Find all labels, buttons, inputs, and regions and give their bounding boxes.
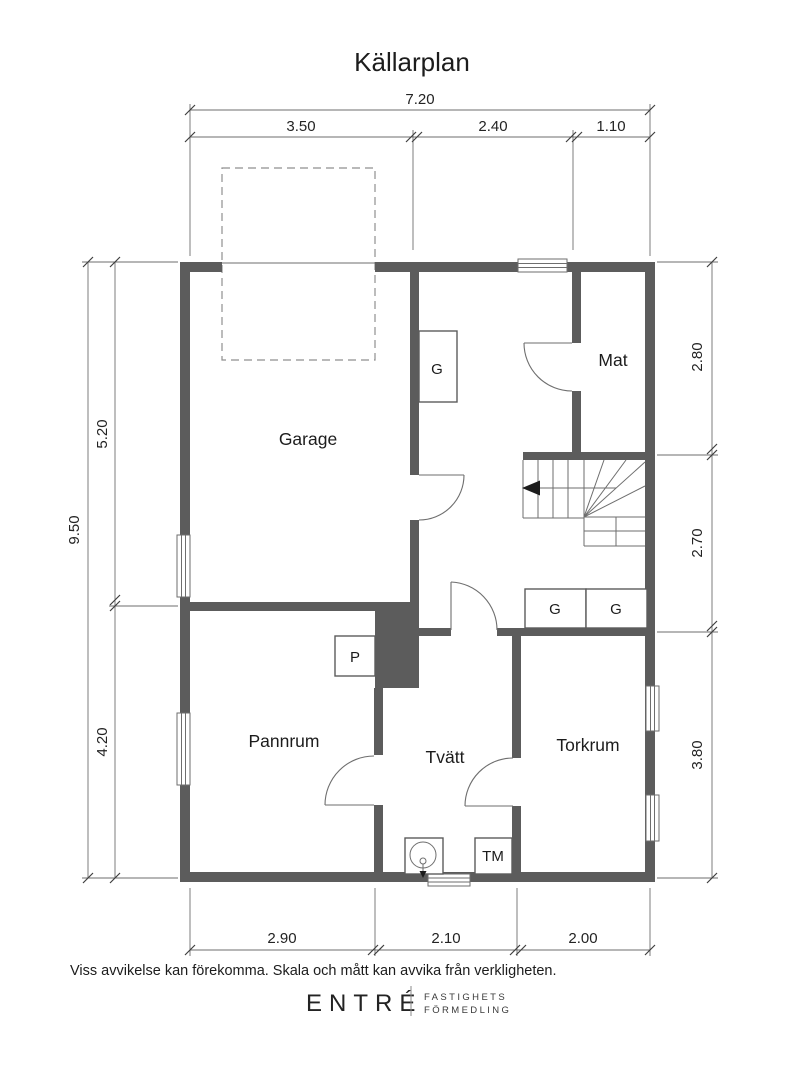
dim-top-seg-2: 2.40 bbox=[478, 118, 507, 135]
room-label-garage: Garage bbox=[279, 429, 337, 449]
garage-door-dashed-outline bbox=[222, 168, 375, 360]
dim-right-seg-3: 3.80 bbox=[689, 740, 706, 769]
dim-bottom-seg-3: 2.00 bbox=[568, 930, 597, 947]
dim-left-seg-2: 4.20 bbox=[94, 727, 111, 756]
door-hall-tvatt bbox=[451, 582, 497, 630]
logo-tagline-1: FASTIGHETS bbox=[424, 992, 507, 1003]
door-mat bbox=[524, 343, 572, 391]
washing-machine-label: TM bbox=[482, 848, 504, 865]
dimension-top: 7.20 3.50 2.40 1.10 bbox=[185, 91, 655, 256]
dim-top-seg-3: 1.10 bbox=[596, 118, 625, 135]
dim-top-total: 7.20 bbox=[405, 91, 434, 108]
room-labels: Garage Mat Pannrum Tvätt Torkrum bbox=[248, 350, 627, 767]
logo: ENTRÉ FASTIGHETS FÖRMEDLING bbox=[306, 986, 511, 1017]
room-label-mat: Mat bbox=[598, 350, 627, 370]
floor-plan-page: Källarplan bbox=[0, 0, 800, 1069]
window-right-upper bbox=[646, 686, 659, 731]
page-title: Källarplan bbox=[354, 47, 470, 77]
boiler-label: P bbox=[350, 649, 360, 666]
dim-left-total: 9.50 bbox=[66, 515, 83, 544]
dimension-bottom: 2.90 2.10 2.00 bbox=[185, 888, 655, 956]
window-top bbox=[518, 259, 567, 272]
dim-top-seg-1: 3.50 bbox=[286, 118, 315, 135]
closet-hall-1-label: G bbox=[549, 601, 561, 618]
staircase bbox=[522, 460, 645, 546]
dim-bottom-seg-1: 2.90 bbox=[267, 930, 296, 947]
closet-garage-label: G bbox=[431, 361, 443, 378]
dim-left-seg-1: 5.20 bbox=[94, 419, 111, 448]
logo-tagline-2: FÖRMEDLING bbox=[424, 1005, 511, 1016]
logo-brand: ENTRÉ bbox=[306, 990, 422, 1017]
room-label-torkrum: Torkrum bbox=[556, 735, 619, 755]
room-label-tvatt: Tvätt bbox=[426, 747, 465, 767]
room-label-pannrum: Pannrum bbox=[248, 731, 319, 751]
dim-bottom-seg-2: 2.10 bbox=[431, 930, 460, 947]
disclaimer-text: Viss avvikelse kan förekomma. Skala och … bbox=[70, 963, 557, 979]
window-left-lower bbox=[177, 713, 190, 785]
dim-right-seg-1: 2.80 bbox=[689, 342, 706, 371]
dim-right-seg-2: 2.70 bbox=[689, 528, 706, 557]
door-pannrum bbox=[325, 756, 374, 805]
stair-direction-arrow-icon bbox=[522, 481, 540, 496]
dimension-left: 9.50 5.20 4.20 bbox=[66, 257, 178, 883]
window-bottom bbox=[428, 874, 470, 886]
window-left-upper bbox=[177, 535, 190, 597]
walls bbox=[180, 262, 655, 882]
door-tvatt-torkrum bbox=[465, 758, 513, 806]
dimension-right: 2.80 2.70 3.80 bbox=[657, 257, 718, 883]
floor-plan-drawing: Källarplan bbox=[0, 0, 800, 1069]
window-right-lower bbox=[646, 795, 659, 841]
door-garage-hall bbox=[419, 475, 464, 520]
water-heater-symbol bbox=[405, 838, 443, 878]
closet-hall-2-label: G bbox=[610, 601, 622, 618]
doors bbox=[325, 343, 572, 806]
chimney-block bbox=[375, 602, 419, 688]
